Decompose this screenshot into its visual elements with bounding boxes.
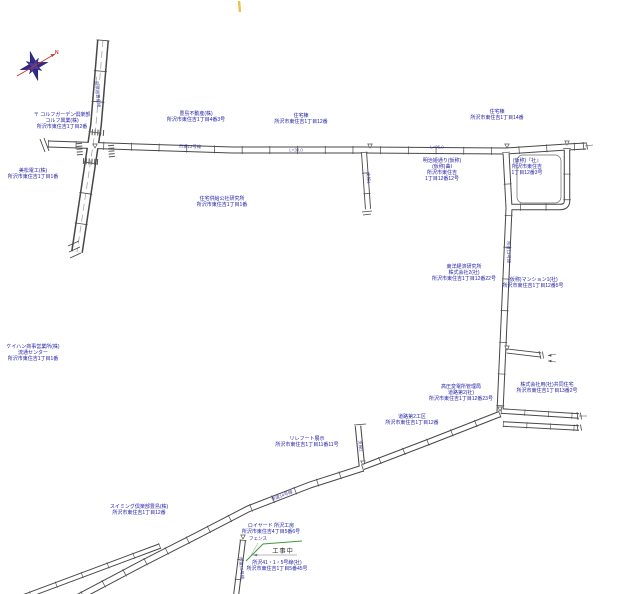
road-name-label: L=30.0 (289, 147, 303, 152)
road-name-label: 市道14号線 (270, 489, 293, 503)
map-label-jutakuto-west: 住宅棟所沢市東住吉1丁目12番 (274, 113, 327, 125)
map-label-gosen-line: 所沢41・1・5号線(社)所沢市東住吉1丁目5番45号 (246, 560, 307, 572)
map-label-keihan-shoji: ケイハン商事営業所(株)流通センター所沢市東住吉1丁目1番 (6, 344, 59, 362)
map-label-doro-koku: 道路第2工区所沢市東住吉1丁目12番 (385, 414, 438, 426)
road-name-label: 市道15号線 (237, 557, 245, 580)
map-label-kyokyu-kosha: 住宅供給公社研究所所沢市東住吉1丁目1番 (197, 196, 248, 208)
road-name-label: 支線1 (365, 172, 371, 183)
compass-north-label: N (55, 50, 59, 56)
map-label-hendensho: 高圧変電所管理局道路第2(社)所沢市東住吉1丁目12番23号 (429, 384, 493, 402)
map-label-mansion: (仮称)マンション1(社)所沢市東住吉1丁目12番5号 (502, 277, 563, 289)
fence-label: フェンス (249, 536, 267, 542)
road-name-label: 市道12号線 (179, 144, 202, 150)
map-label-toyo-keizai: 東洋経済研究所株式会社2(社)所沢市東住吉1丁目12番22号 (432, 264, 496, 282)
map-label-denko: 美松電工(株)所沢市東住吉1丁目1番 (8, 168, 59, 180)
map-label-toshima-fudosan: 豊島不動産(株)所沢市東住吉1丁目4番3号 (167, 111, 225, 123)
map-label-rirefuto: リレフート展示所沢市東住吉1丁目11番11号 (275, 436, 338, 448)
construction-status-label: 工事中 (272, 546, 294, 555)
map-label-royado-kobo: ロイヤード 所沢工房所沢市東住吉4丁目5番6号 (242, 523, 300, 535)
map-canvas: N フェンス 工事中 〒 コルフガーデン倶楽部コルフ興業(株)所沢市東住吉1丁目… (0, 0, 640, 594)
map-label-jutakuto-east: 住宅棟所沢市東住吉1丁目14番 (470, 109, 523, 121)
road-name-label: 支線2 (357, 440, 364, 452)
road-name-label: 市道13号線 (505, 241, 512, 264)
road-name-label: 一般県道豊島線 (93, 76, 102, 107)
road-name-label: L=96.0 (430, 144, 444, 149)
map-label-kyodo-jutaku: 株式会社用(社)共同住宅所沢市東住吉1丁目13番2号 (516, 382, 577, 394)
map-label-garden-club: 〒 コルフガーデン倶楽部コルフ興業(株)所沢市東住吉1丁目2番 (34, 112, 90, 130)
map-labels-layer: N フェンス 工事中 〒 コルフガーデン倶楽部コルフ興業(株)所沢市東住吉1丁目… (0, 0, 640, 594)
map-label-kasho-yashiro: (仮称)『社』所沢市東住吉1丁目12番3号 (511, 158, 542, 176)
map-label-swimming-club: スイミング倶楽部豊島(株)所沢市東住吉1丁目12番 (110, 504, 168, 516)
map-label-meiji-dori: 明治姫通り(仮称)(仮称)曲I所沢市東住吉1丁目12番12号 (423, 158, 461, 182)
